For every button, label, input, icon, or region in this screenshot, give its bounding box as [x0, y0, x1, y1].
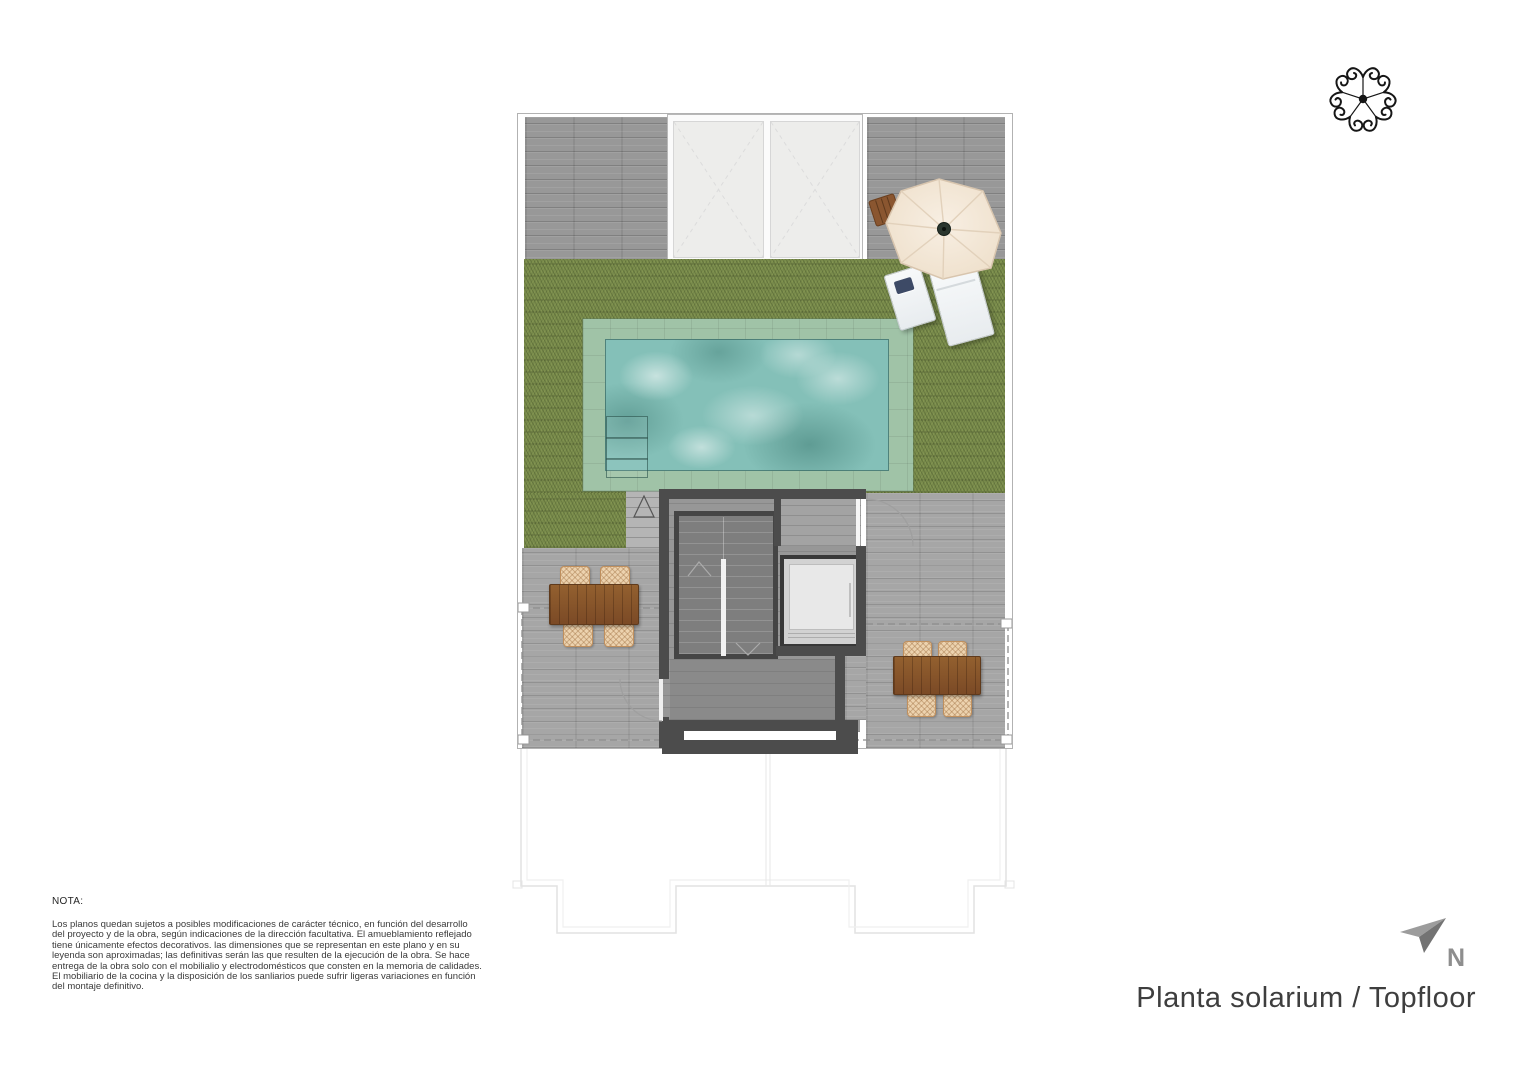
door-swing-arc	[866, 499, 913, 546]
north-arrow-icon	[1395, 910, 1451, 958]
stair-direction-chevron	[736, 643, 760, 655]
note-heading: NOTA:	[52, 896, 83, 907]
page-title: Planta solarium / Topfloor	[1136, 982, 1476, 1015]
steps-arrow-icon	[634, 496, 654, 517]
door-swing-arc	[620, 679, 662, 721]
floor-plan-sheet: NOTA: Los planos quedan sujetos a posibl…	[0, 0, 1528, 1080]
north-label: N	[1447, 944, 1465, 973]
stair-direction-chevron	[688, 562, 711, 576]
note-body: Los planos quedan sujetos a posibles mod…	[52, 920, 512, 993]
solarium-plan	[517, 113, 1013, 749]
annotation-marks	[518, 114, 1012, 754]
logo-rosette-icon	[1326, 62, 1400, 136]
lower-floor-outline	[505, 745, 1025, 945]
